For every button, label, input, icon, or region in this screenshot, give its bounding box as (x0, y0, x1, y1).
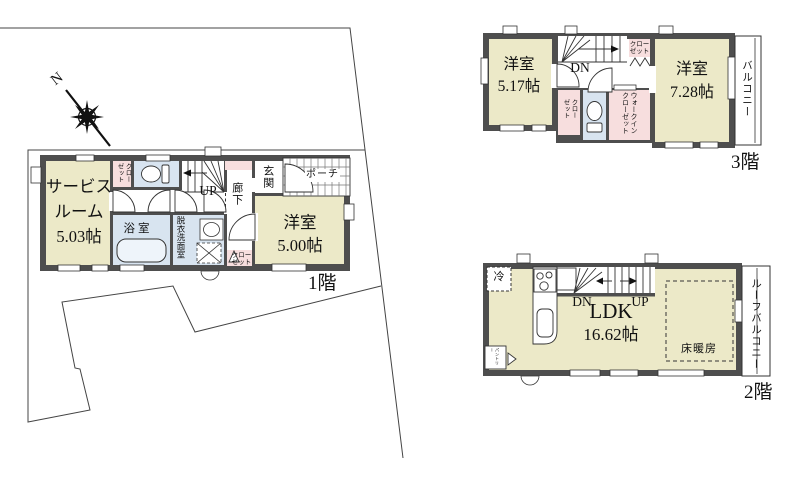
ldk-size: 16.62帖 (558, 324, 664, 346)
western-room-3f-right-label: 洋室 7.28帖 (653, 58, 731, 104)
stairs-2f-landing (557, 268, 576, 290)
compass-rose (66, 90, 110, 146)
washing-machine-space (197, 243, 221, 263)
bathroom-label: 浴室 (119, 222, 157, 236)
kitchen-sink (537, 309, 553, 337)
floor2-label: 2階 (744, 381, 773, 405)
stairs-2f-up-label: UP (626, 294, 654, 311)
western-room-1f-label: 洋室 5.00帖 (256, 211, 344, 257)
western-room-1f-size: 5.00帖 (256, 234, 344, 257)
closet-3f-top-label: クローゼット (629, 41, 650, 55)
porch-label: ポーチ (305, 169, 340, 182)
stairs-1f-label: UP (193, 183, 223, 200)
pantry-label: パントリー (490, 348, 500, 368)
hall-closet-strip (225, 161, 252, 170)
washroom-label: 脱衣洗面室 (175, 216, 186, 270)
floor1-label: 1階 (308, 272, 337, 296)
hallway-label: 廊下 (229, 182, 243, 212)
service-room-label: サービス ルーム 5.03帖 (43, 174, 115, 249)
refrigerator-label: 冷 (487, 271, 511, 285)
western-room-3f-right-size: 7.28帖 (653, 81, 731, 104)
floor-plan-page: N サービス ルーム 5.03帖 洋室 5.00帖 浴室 脱衣洗面室 廊下 玄関… (0, 0, 800, 490)
stove-burner (540, 282, 548, 290)
floor-heating-label: 床暖房 (681, 343, 717, 357)
stairs-2f-dn-label: DN (568, 294, 596, 311)
service-room-name-line2: ルーム (43, 199, 115, 224)
service-room-name-line1: サービス (43, 174, 115, 199)
kitchen-counter (533, 267, 557, 344)
bathtub (117, 239, 166, 262)
western-room-1f-name: 洋室 (256, 211, 344, 234)
service-room-size: 5.03帖 (43, 224, 115, 249)
western-room-3f-left-name: 洋室 (486, 54, 552, 76)
wash-basin (200, 219, 223, 240)
closet-3f-side-label: クローゼット (561, 99, 577, 123)
balcony-label: バルコニー (740, 60, 753, 122)
western-room-3f-right-name: 洋室 (653, 58, 731, 81)
closet-1f-top-label: クローゼット (114, 163, 131, 185)
roof-balcony-label: ルーフバルコニー (749, 278, 762, 370)
walk-in-closet-label: ウォークインクローゼット (620, 92, 638, 138)
stove-burner (546, 272, 552, 278)
toilet-fixture-1f (142, 165, 170, 183)
entrance-label: 玄関 (260, 165, 274, 195)
stove-burner (537, 273, 543, 279)
western-room-3f-left-size: 5.17帖 (486, 76, 552, 98)
closet-1f-bottom-label: クローゼット (231, 252, 252, 266)
western-room-3f-left-label: 洋室 5.17帖 (486, 54, 552, 98)
floor3-label: 3階 (731, 151, 760, 175)
stairs-3f-dn-label: DN (566, 60, 594, 77)
toilet-fixture-3f (587, 102, 602, 133)
